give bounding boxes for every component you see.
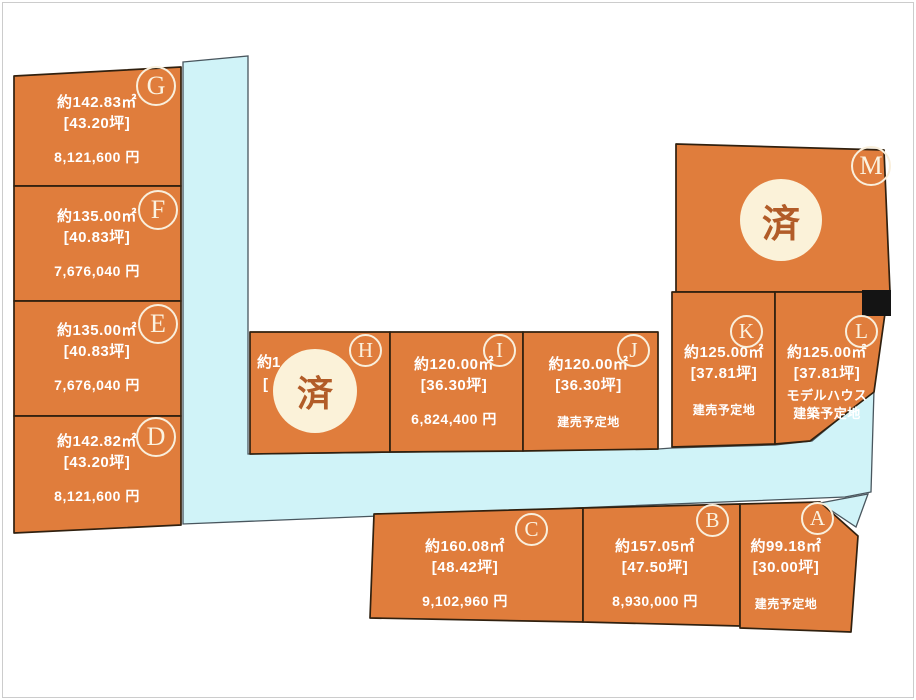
- boundary-marker: [862, 290, 891, 316]
- plot-L-tsubo: [37.81坪]: [768, 363, 886, 384]
- plot-A-badge[interactable]: A: [801, 502, 834, 535]
- plot-I-badge[interactable]: I: [483, 334, 516, 367]
- plot-A-info: 約99.18㎡ [30.00坪] 建売予定地: [732, 536, 840, 612]
- plot-G-price: 8,121,600 円: [22, 147, 172, 167]
- plot-B-area: 約157.05㎡: [585, 536, 725, 557]
- plot-F-tsubo: [40.83坪]: [22, 227, 172, 248]
- plot-B-price: 8,930,000 円: [585, 591, 725, 611]
- plot-B-info: 約157.05㎡ [47.50坪] 8,930,000 円: [585, 536, 725, 611]
- plot-C-info: 約160.08㎡ [48.42坪] 9,102,960 円: [390, 536, 540, 611]
- plot-I-tsubo: [36.30坪]: [393, 375, 515, 396]
- plot-J-note: 建売予定地: [526, 413, 651, 430]
- plot-J-badge[interactable]: J: [617, 334, 650, 367]
- plot-M-sold-circle: 済: [740, 179, 822, 261]
- plot-E-tsubo: [40.83坪]: [22, 341, 172, 362]
- plot-K-tsubo: [37.81坪]: [674, 363, 774, 384]
- plot-H-badge[interactable]: H: [349, 334, 382, 367]
- plot-K-badge[interactable]: K: [730, 315, 763, 348]
- plot-K-area: 約125.00㎡: [674, 342, 774, 363]
- plot-M-badge[interactable]: M: [851, 146, 891, 186]
- plot-C-badge[interactable]: C: [515, 513, 548, 546]
- plot-C-tsubo: [48.42坪]: [390, 557, 540, 578]
- plot-L-badge[interactable]: L: [845, 315, 878, 348]
- plot-G-tsubo: [43.20坪]: [22, 113, 172, 134]
- plot-A-area: 約99.18㎡: [732, 536, 840, 557]
- plot-A-tsubo: [30.00坪]: [732, 557, 840, 578]
- plot-K-info: 約125.00㎡ [37.81坪] 建売予定地: [674, 342, 774, 418]
- plot-E-price: 7,676,040 円: [22, 375, 172, 395]
- plot-A-note: 建売予定地: [732, 595, 840, 612]
- plot-K-note: 建売予定地: [674, 401, 774, 418]
- plot-D-badge[interactable]: D: [136, 417, 176, 457]
- plot-F-price: 7,676,040 円: [22, 261, 172, 281]
- plot-M-sold-label: 済: [762, 193, 800, 248]
- plot-H-sold-label: 済: [297, 365, 333, 417]
- plot-D-price: 8,121,600 円: [22, 486, 172, 506]
- plot-I-price: 6,824,400 円: [393, 409, 515, 429]
- plot-J-tsubo: [36.30坪]: [526, 375, 651, 396]
- plot-H-tsubo-fragment: [: [263, 374, 268, 396]
- lot-map: 約142.83㎡ [43.20坪] 8,121,600 円 G 約135.00㎡…: [0, 0, 916, 700]
- plot-G-badge[interactable]: G: [136, 66, 176, 106]
- plot-C-price: 9,102,960 円: [390, 591, 540, 611]
- plot-E-badge[interactable]: E: [138, 304, 178, 344]
- plot-L-info: 約125.00㎡ [37.81坪] モデルハウス 建築予定地: [768, 342, 886, 423]
- plot-F-badge[interactable]: F: [138, 190, 178, 230]
- plot-B-badge[interactable]: B: [696, 504, 729, 537]
- plot-L-note-1: モデルハウス: [768, 387, 886, 405]
- plot-L-note-2: 建築予定地: [768, 405, 886, 423]
- plot-B-tsubo: [47.50坪]: [585, 557, 725, 578]
- plot-H-sold-circle: 済: [273, 349, 357, 433]
